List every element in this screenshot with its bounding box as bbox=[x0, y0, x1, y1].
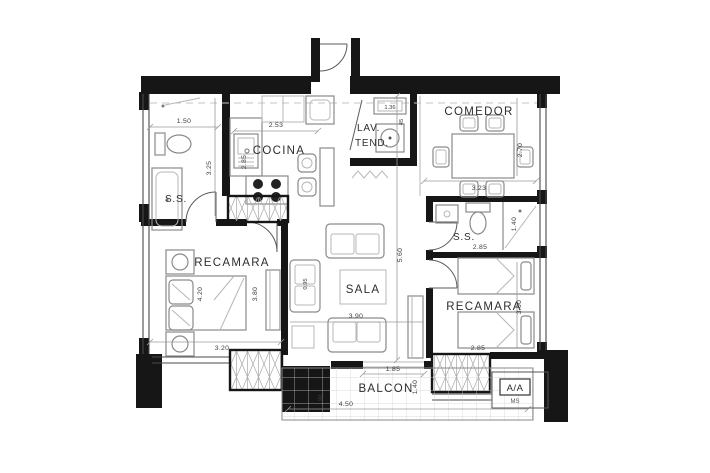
tv-console-icon bbox=[408, 296, 423, 358]
room-label-cocina: COCINA bbox=[253, 145, 306, 157]
dim-ss-right-width: 2.85 bbox=[473, 244, 487, 251]
window-right-wall bbox=[540, 94, 546, 350]
dim-balcon-width: 4.50 bbox=[339, 401, 353, 408]
dim-sala-sofa: 0.95 bbox=[303, 278, 309, 289]
room-label-ss-right: S.S. bbox=[453, 232, 475, 243]
dim-lav-depth: 45 bbox=[399, 119, 405, 125]
closet-icon bbox=[228, 196, 288, 222]
room-label-sala: SALA bbox=[346, 284, 381, 296]
bath-left-door-arc bbox=[186, 192, 216, 222]
room-label-tend: TEND. bbox=[355, 138, 389, 149]
dim-recamara-right-width: 2.85 bbox=[471, 345, 485, 352]
room-balcon: BALCON 1.85 1.40 4.50 90 bbox=[282, 366, 533, 420]
ceiling-lamp-icon bbox=[162, 105, 165, 108]
room-label-recamara-right: RECAMARA bbox=[446, 301, 522, 313]
drying-line bbox=[352, 171, 388, 178]
double-bed-icon bbox=[166, 276, 246, 330]
dim-ss-left-width: 1.50 bbox=[177, 118, 191, 125]
room-label-comedor: COMEDOR bbox=[444, 106, 513, 118]
room-ss-left: S.S. 1.50 3.25 bbox=[147, 98, 221, 230]
dim-comedor-height: 2.70 bbox=[517, 143, 524, 157]
floor-plan-drawing: S.S. 1.50 3.25 COCINA 2.53 2.85 bbox=[0, 0, 710, 473]
shower-drain-icon bbox=[519, 210, 522, 213]
dim-cocina-height: 2.85 bbox=[241, 155, 248, 169]
dim-recamara-right-height: 3.00 bbox=[516, 300, 523, 314]
ac-sublabel: MS bbox=[511, 399, 520, 405]
dim-ss-left-height: 3.25 bbox=[206, 161, 213, 175]
dim-sala-height: 5.60 bbox=[397, 248, 404, 262]
closet-icon bbox=[230, 350, 282, 390]
dim-balcon-rail: 90 bbox=[318, 395, 324, 401]
dim-recamara-left-bed: 4.20 bbox=[197, 287, 204, 301]
dim-sala-width: 3.90 bbox=[349, 313, 363, 320]
room-label-ss-left: S.S. bbox=[165, 194, 187, 205]
single-bed-icon bbox=[458, 312, 534, 348]
toilet-bowl-icon bbox=[167, 135, 191, 153]
sofa-icon bbox=[326, 224, 384, 258]
single-bed-icon bbox=[458, 258, 534, 294]
pillow bbox=[521, 316, 531, 344]
dresser-icon bbox=[266, 270, 280, 330]
bedroom-left-door-arc bbox=[247, 222, 277, 252]
toilet-bowl-icon bbox=[470, 212, 486, 234]
room-label-recamara-left: RECAMARA bbox=[194, 257, 270, 269]
room-ss-right: S.S. 2.85 1.40 bbox=[436, 202, 536, 251]
column-bottom-left bbox=[136, 354, 162, 408]
pillow bbox=[521, 262, 531, 290]
kitchen-bar bbox=[320, 148, 334, 206]
window-bedroom-left-south bbox=[152, 357, 230, 363]
room-cocina: COCINA 2.53 2.85 bbox=[230, 96, 334, 206]
room-comedor: COMEDOR 3.23 2.70 bbox=[421, 98, 539, 197]
dim-comedor-width: 3.23 bbox=[472, 185, 486, 192]
dim-recamara-left-width: 3.20 bbox=[215, 345, 229, 352]
stool-icon bbox=[298, 178, 316, 196]
side-table-icon bbox=[292, 326, 314, 348]
room-label-balcon: BALCON bbox=[358, 383, 413, 395]
toilet-icon bbox=[466, 203, 490, 212]
dim-cocina-width: 2.53 bbox=[269, 122, 283, 129]
sink-icon bbox=[436, 205, 458, 223]
floor-plan-canvas: S.S. 1.50 3.25 COCINA 2.53 2.85 bbox=[0, 0, 710, 473]
toilet-icon bbox=[155, 133, 165, 155]
bedroom-right-door-arc bbox=[429, 260, 457, 288]
dim-recamara-left-height: 3.80 bbox=[252, 287, 259, 301]
room-label-lav: LAV. bbox=[357, 123, 380, 134]
dim-balcon-opening: 1.85 bbox=[386, 366, 400, 373]
dim-lav-width: 1.36 bbox=[384, 105, 395, 111]
dining-table-icon bbox=[452, 134, 514, 178]
dim-ss-right-height: 1.40 bbox=[511, 217, 518, 231]
entry-door-arc bbox=[320, 44, 347, 71]
ac-label: A/A bbox=[507, 383, 524, 394]
dim-balcon-depth: 1.40 bbox=[412, 380, 419, 394]
